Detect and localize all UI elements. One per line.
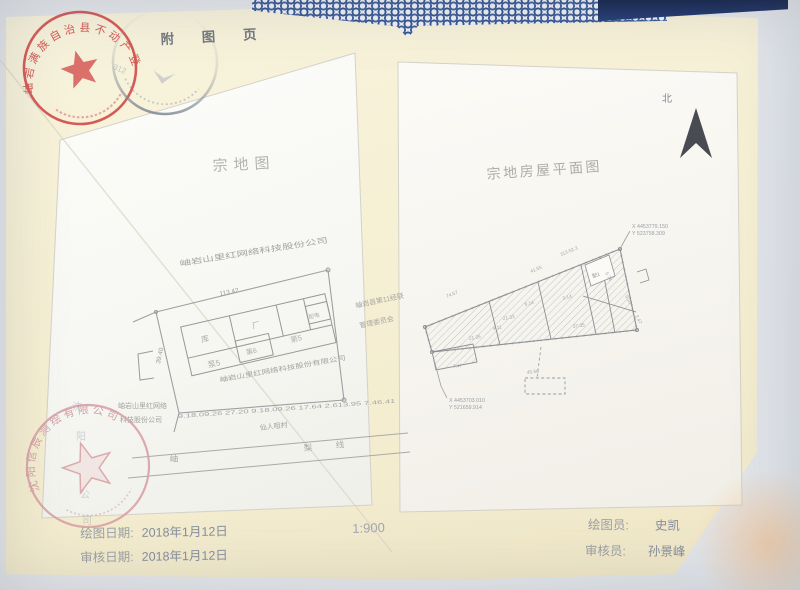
east-protrusion bbox=[637, 269, 649, 283]
map-scale: 1:900 bbox=[352, 520, 385, 536]
stamp-star-icon bbox=[57, 46, 103, 91]
left-map-title: 宗地图 bbox=[212, 152, 276, 176]
review-date-label: 审核日期: bbox=[80, 546, 134, 566]
coordinate-bottom-x: X 4453703.010 bbox=[449, 398, 485, 404]
stamp-star-icon bbox=[57, 436, 119, 496]
scale-value: 1:900 bbox=[352, 520, 385, 536]
building-label: 第6 bbox=[245, 346, 258, 357]
building-label: 库 bbox=[200, 333, 210, 345]
parcel-top-dimension: 113.42 bbox=[219, 287, 240, 298]
bleed-char: 沈 bbox=[72, 400, 82, 413]
parcel-owner-inner: 岫岩山里红网络科技股份有限公司 bbox=[219, 353, 347, 384]
coordinate-bottom-y: Y 521659.914 bbox=[449, 405, 482, 411]
draw-date-row: 绘图日期: 2018年1月12日 bbox=[80, 520, 228, 542]
reviewer-label: 审核员: bbox=[585, 540, 626, 559]
north-neighbor-owner: 岫岩山里红网络科技股份公司 bbox=[179, 235, 329, 268]
village-label: 仙人咀村 bbox=[259, 420, 288, 432]
survey-point-numbers: 9.18.09.26 27.20 9.18.09.26 17.64 2.613.… bbox=[178, 399, 396, 420]
review-date-row: 审核日期: 2018年1月12日 bbox=[80, 544, 228, 566]
dim-text: 41.55 bbox=[530, 265, 544, 275]
dim-text: 7.47 bbox=[453, 363, 463, 370]
road-char-3: 线 bbox=[335, 439, 345, 450]
bleed-char: 公 bbox=[80, 490, 90, 501]
drafter-name: 史凯 bbox=[655, 515, 680, 534]
stamp-serial-marks bbox=[66, 489, 135, 524]
north-arrow: 北 bbox=[652, 86, 724, 166]
east-neighbor-line2: 管理委员会 bbox=[359, 314, 395, 330]
dashed-outbuilding bbox=[525, 378, 565, 394]
drafter-label: 绘图员: bbox=[588, 514, 629, 533]
coord-leader-top bbox=[620, 231, 630, 249]
building-plan-drawing: 配1 X 4453779.150 Y 523758.309 X 4453703.… bbox=[413, 216, 715, 434]
road-char-1: 岫 bbox=[169, 453, 178, 464]
dim-text: 45.56 bbox=[527, 369, 540, 376]
east-neighbor-line1: 岫岩县第11经联 bbox=[355, 291, 405, 310]
reviewer-row: 审核员: 孙景峰 bbox=[585, 540, 686, 560]
building-label: 厂 bbox=[251, 320, 261, 331]
building-label: 配电 bbox=[308, 310, 321, 320]
draw-date-value: 2018年1月12日 bbox=[141, 520, 227, 541]
building-label: 泵5 bbox=[207, 358, 222, 370]
survey-company-stamp: 沈阳信辰测绘有限公司 沈 阳 公 司 bbox=[14, 396, 164, 542]
grey-partial-stamp: 312 bbox=[98, 12, 238, 130]
dim-text: 113.52.3 bbox=[560, 245, 580, 258]
parcel-left-dimension: 39.40 bbox=[155, 347, 165, 365]
coordinate-top-x: X 4453779.150 bbox=[632, 224, 668, 230]
review-date-value: 2018年1月12日 bbox=[141, 544, 227, 565]
bleed-char: 阳 bbox=[76, 431, 86, 443]
north-label: 北 bbox=[662, 93, 672, 105]
dim-text: 74.57 bbox=[446, 290, 460, 300]
reviewer-name: 孙景峰 bbox=[648, 541, 686, 560]
west-neighbor-outline bbox=[138, 351, 154, 380]
stamp-star-half-icon bbox=[152, 71, 175, 86]
north-arrow-icon bbox=[680, 108, 712, 158]
photo-of-certificate-page: 附 图 页 宗地图 宗地房屋平面图 113.42 岫岩山里红网络科技股份公司 3… bbox=[0, 0, 800, 590]
draw-date-label: 绘图日期: bbox=[80, 522, 134, 542]
drafter-row: 绘图员: 史凯 bbox=[588, 514, 680, 534]
coordinate-top-y: Y 523758.309 bbox=[632, 231, 665, 237]
road-char-2: 梨 bbox=[303, 442, 313, 453]
